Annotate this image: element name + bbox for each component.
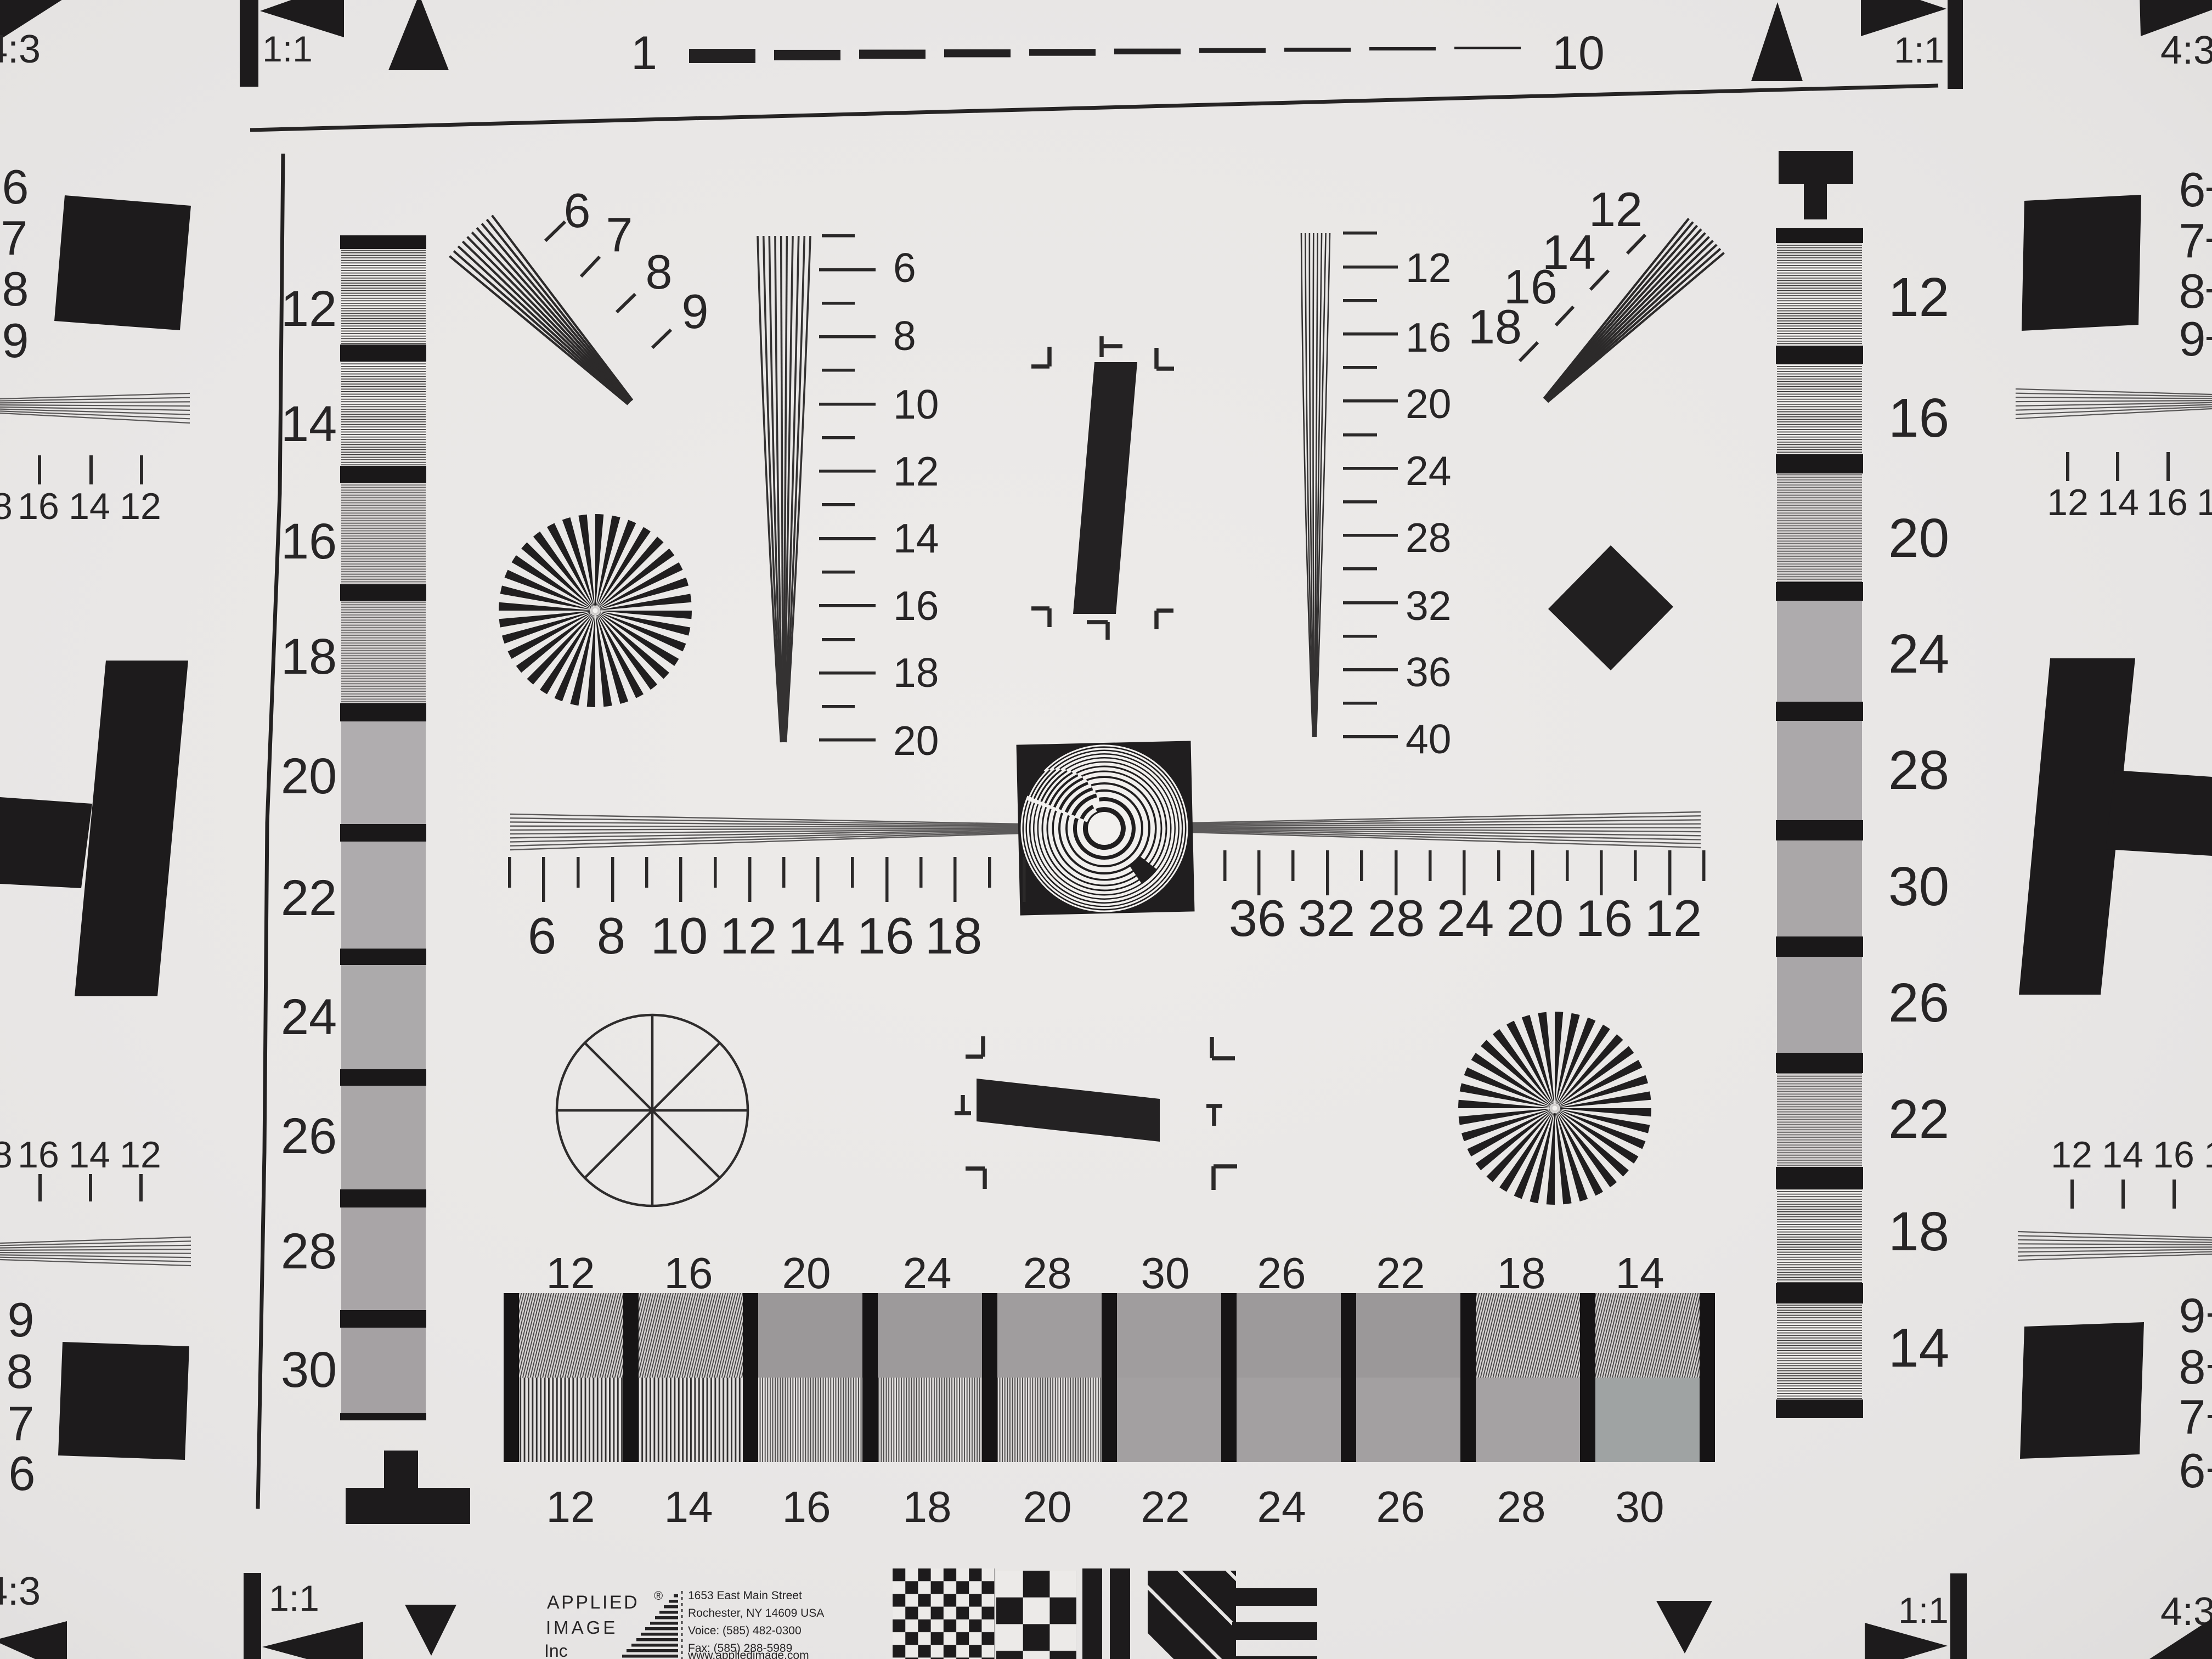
svg-text:7: 7 [606, 207, 633, 262]
svg-text:6: 6 [893, 245, 916, 291]
svg-text:12: 12 [546, 1249, 595, 1297]
svg-text:18: 18 [2204, 1134, 2212, 1176]
svg-text:28: 28 [1368, 889, 1425, 947]
svg-text:36: 36 [1406, 649, 1451, 695]
svg-text:24: 24 [281, 989, 337, 1045]
svg-text:1:1: 1:1 [1894, 30, 1944, 70]
svg-text:14: 14 [281, 396, 337, 452]
svg-text:20: 20 [1506, 889, 1564, 947]
svg-text:4:3: 4:3 [0, 1570, 41, 1613]
svg-text:32: 32 [1298, 889, 1356, 947]
svg-text:28: 28 [1888, 740, 1949, 801]
svg-text:22: 22 [1141, 1482, 1190, 1531]
svg-text:26: 26 [1376, 1482, 1425, 1531]
svg-text:9: 9 [2179, 1288, 2206, 1342]
svg-text:24: 24 [903, 1249, 952, 1297]
svg-text:9: 9 [682, 284, 709, 338]
svg-text:1: 1 [631, 27, 657, 80]
svg-text:6: 6 [2179, 1443, 2206, 1498]
svg-text:28: 28 [1497, 1482, 1546, 1531]
svg-text:Inc: Inc [544, 1641, 568, 1659]
svg-text:12: 12 [546, 1482, 595, 1531]
svg-text:20: 20 [1888, 507, 1949, 569]
svg-text:12: 12 [893, 448, 939, 494]
svg-text:14: 14 [1888, 1317, 1949, 1379]
svg-text:12: 12 [1589, 182, 1643, 236]
svg-text:18: 18 [281, 629, 337, 685]
svg-text:7: 7 [2179, 213, 2206, 268]
svg-text:8: 8 [597, 907, 625, 964]
svg-text:7: 7 [2179, 1390, 2206, 1444]
svg-text:Voice: (585) 482-0300: Voice: (585) 482-0300 [688, 1624, 802, 1637]
svg-text:18: 18 [903, 1482, 952, 1531]
svg-text:18: 18 [0, 486, 13, 527]
svg-text:22: 22 [1888, 1088, 1949, 1150]
svg-text:14: 14 [69, 486, 110, 527]
svg-text:1:1: 1:1 [269, 1578, 319, 1618]
svg-text:4:3: 4:3 [0, 27, 41, 71]
svg-text:12: 12 [1645, 889, 1702, 947]
svg-text:24: 24 [1406, 448, 1451, 494]
svg-text:16: 16 [1576, 889, 1633, 947]
svg-text:9: 9 [8, 1293, 35, 1347]
svg-text:14: 14 [788, 907, 845, 964]
svg-text:32: 32 [1406, 583, 1451, 629]
svg-text:28: 28 [281, 1223, 337, 1279]
svg-text:8: 8 [893, 313, 916, 359]
svg-text:20: 20 [893, 718, 939, 764]
svg-text:8: 8 [2179, 264, 2206, 318]
svg-text:10: 10 [893, 381, 939, 427]
svg-text:22: 22 [281, 870, 337, 926]
svg-text:4:3: 4:3 [2160, 29, 2212, 72]
svg-text:16: 16 [18, 486, 59, 527]
svg-text:14: 14 [69, 1134, 110, 1176]
svg-text:22: 22 [1376, 1249, 1425, 1297]
svg-text:14: 14 [1616, 1249, 1664, 1297]
svg-text:6: 6 [564, 183, 591, 238]
svg-text:10: 10 [651, 907, 708, 964]
svg-text:1:1: 1:1 [1898, 1590, 1949, 1630]
svg-text:18: 18 [1468, 300, 1522, 354]
svg-text:26: 26 [281, 1108, 337, 1164]
svg-text:40: 40 [1406, 716, 1451, 762]
svg-text:12: 12 [120, 486, 161, 527]
svg-text:16: 16 [782, 1482, 831, 1531]
svg-text:28: 28 [1406, 515, 1451, 561]
svg-text:1653 East Main Street: 1653 East Main Street [688, 1589, 802, 1602]
svg-text:16: 16 [1406, 314, 1451, 360]
svg-text:12: 12 [281, 281, 337, 337]
svg-text:30: 30 [281, 1342, 337, 1398]
svg-text:12: 12 [720, 907, 777, 964]
svg-text:36: 36 [1229, 889, 1286, 947]
svg-text:16: 16 [281, 513, 337, 569]
svg-text:30: 30 [1616, 1482, 1664, 1531]
svg-text:16: 16 [664, 1249, 713, 1297]
svg-text:12: 12 [1406, 245, 1451, 291]
svg-text:16: 16 [18, 1134, 59, 1176]
svg-text:8: 8 [2, 262, 29, 316]
svg-text:24: 24 [1888, 623, 1949, 685]
svg-text:12: 12 [2047, 482, 2089, 523]
svg-text:6: 6 [528, 907, 556, 964]
svg-text:18: 18 [893, 650, 939, 696]
svg-text:www.appliedimage.com: www.appliedimage.com [687, 1649, 809, 1659]
svg-text:9: 9 [2, 313, 29, 368]
svg-text:Rochester, NY 14609 USA: Rochester, NY 14609 USA [688, 1607, 824, 1620]
svg-text:IMAGE: IMAGE [546, 1617, 618, 1638]
svg-text:1:1: 1:1 [262, 29, 313, 69]
svg-text:16: 16 [893, 583, 939, 629]
svg-text:14: 14 [2102, 1134, 2143, 1176]
svg-text:24: 24 [1437, 889, 1494, 947]
svg-text:30: 30 [1888, 856, 1949, 917]
svg-text:8: 8 [7, 1344, 33, 1398]
svg-text:20: 20 [1406, 381, 1451, 427]
svg-text:24: 24 [1257, 1482, 1306, 1531]
svg-text:16: 16 [2153, 1134, 2194, 1176]
svg-text:14: 14 [664, 1482, 713, 1531]
svg-text:26: 26 [1888, 972, 1949, 1034]
svg-text:9: 9 [2179, 312, 2206, 366]
svg-text:14: 14 [2097, 482, 2139, 523]
svg-text:7: 7 [1, 211, 28, 265]
svg-text:8: 8 [646, 245, 673, 299]
svg-text:20: 20 [1023, 1482, 1072, 1531]
svg-text:16: 16 [1888, 387, 1949, 449]
svg-text:7: 7 [8, 1396, 35, 1451]
svg-text:6: 6 [9, 1446, 36, 1500]
svg-text:26: 26 [1257, 1249, 1306, 1297]
svg-text:20: 20 [782, 1249, 831, 1297]
svg-text:®: ® [654, 1589, 663, 1602]
svg-text:8: 8 [2179, 1340, 2206, 1394]
svg-text:30: 30 [1141, 1249, 1190, 1297]
svg-text:20: 20 [281, 748, 337, 804]
svg-text:12: 12 [120, 1134, 161, 1176]
svg-text:10: 10 [1552, 27, 1605, 80]
svg-text:12: 12 [1888, 267, 1949, 328]
svg-text:14: 14 [893, 515, 939, 561]
svg-text:16: 16 [2146, 482, 2188, 523]
svg-text:18: 18 [0, 1134, 13, 1176]
svg-text:18: 18 [1888, 1201, 1949, 1262]
svg-text:6: 6 [2179, 162, 2206, 217]
svg-text:12: 12 [2051, 1134, 2092, 1176]
svg-text:6: 6 [2, 160, 29, 214]
svg-text:18: 18 [925, 907, 983, 964]
svg-text:APPLIED: APPLIED [547, 1592, 639, 1613]
svg-text:18: 18 [2197, 482, 2212, 523]
svg-text:18: 18 [1497, 1249, 1546, 1297]
svg-text:28: 28 [1023, 1249, 1072, 1297]
svg-text:16: 16 [857, 907, 915, 964]
